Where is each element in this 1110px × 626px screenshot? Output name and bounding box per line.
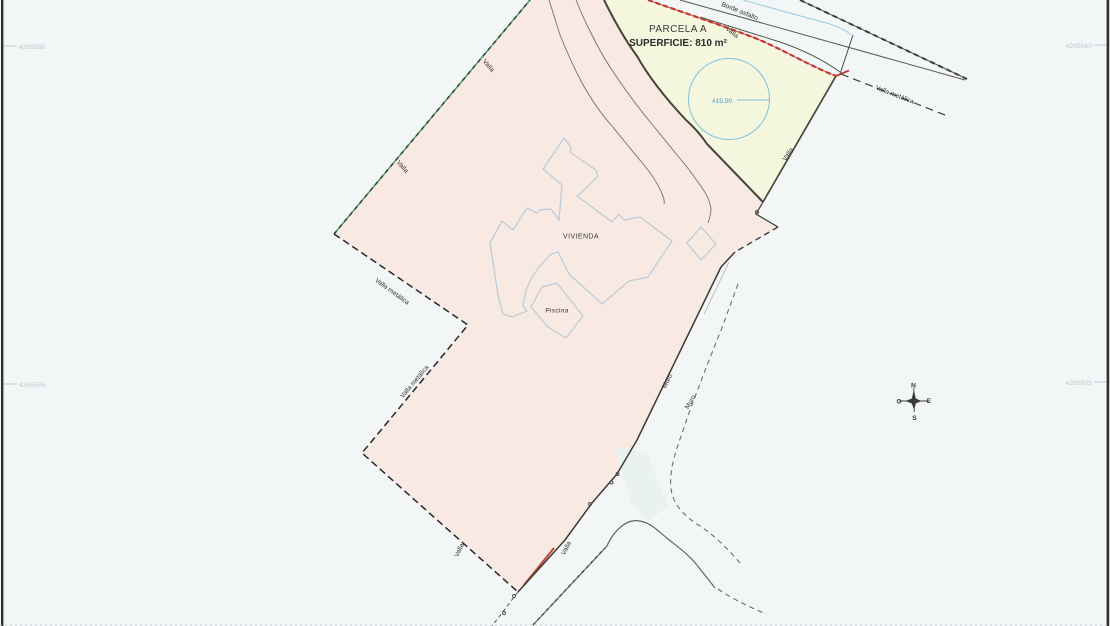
- svg-text:Piscina: Piscina: [545, 308, 568, 315]
- svg-text:N: N: [911, 383, 916, 390]
- svg-text:4265560: 4265560: [1066, 43, 1093, 50]
- svg-text:PARCELA A: PARCELA A: [649, 24, 707, 35]
- svg-text:SUPERFICIE: 810 m²: SUPERFICIE: 810 m²: [629, 38, 727, 49]
- svg-text:4265505: 4265505: [19, 382, 46, 389]
- svg-text:VIVIENDA: VIVIENDA: [563, 234, 599, 241]
- svg-text:4265505: 4265505: [1066, 380, 1093, 387]
- svg-text:O: O: [896, 399, 901, 406]
- svg-text:4265560: 4265560: [19, 44, 46, 51]
- svg-text:#15.00: #15.00: [712, 98, 732, 105]
- svg-text:S: S: [912, 415, 917, 422]
- svg-text:E: E: [927, 398, 932, 405]
